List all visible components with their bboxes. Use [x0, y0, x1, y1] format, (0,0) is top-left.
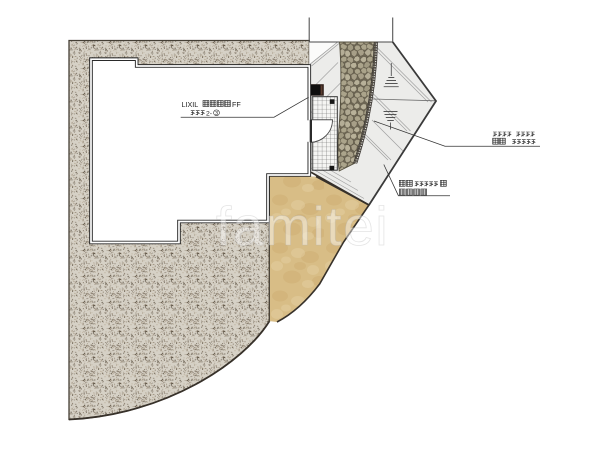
svg-text:LIXIL: LIXIL [182, 100, 199, 109]
svg-text:famitei: famitei [216, 195, 389, 257]
svg-text:FF: FF [232, 100, 241, 109]
svg-text:2-: 2- [206, 111, 212, 118]
svg-text:3: 3 [215, 111, 218, 117]
